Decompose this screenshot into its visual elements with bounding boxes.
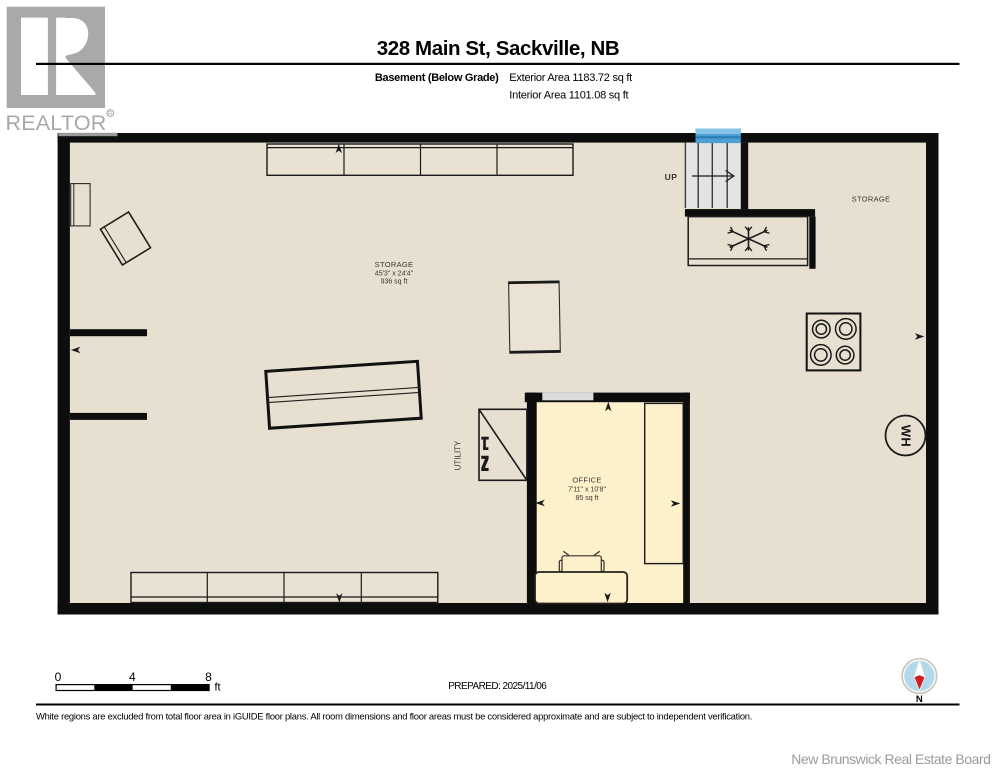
svg-text:7'11" x 10'8": 7'11" x 10'8" (568, 486, 606, 493)
svg-text:85 sq ft: 85 sq ft (576, 495, 599, 502)
svg-text:Basement (Below Grade): Basement (Below Grade) (375, 72, 499, 84)
svg-text:936 sq ft: 936 sq ft (381, 279, 408, 286)
svg-text:New Brunswick Real Estate Boar: New Brunswick Real Estate Board (791, 751, 990, 767)
svg-text:UP: UP (665, 172, 678, 182)
svg-text:328 Main St, Sackville, NB: 328 Main St, Sackville, NB (377, 37, 620, 60)
svg-text:N: N (916, 694, 923, 705)
svg-text:R: R (108, 110, 113, 117)
svg-text:STORAGE: STORAGE (852, 194, 891, 203)
svg-text:45'3" x 24'4": 45'3" x 24'4" (375, 271, 414, 278)
svg-text:0: 0 (55, 670, 62, 684)
svg-text:W: W (898, 425, 913, 438)
svg-text:ft: ft (215, 682, 221, 694)
svg-text:REALTOR: REALTOR (6, 111, 107, 135)
svg-text:PREPARED: 2025/11/06: PREPARED: 2025/11/06 (448, 681, 547, 692)
svg-text:4: 4 (129, 670, 136, 684)
svg-text:STORAGE: STORAGE (375, 260, 414, 269)
svg-text:8: 8 (205, 670, 212, 684)
svg-text:Exterior Area 1183.72 sq ft: Exterior Area 1183.72 sq ft (509, 72, 632, 84)
svg-text:White regions are excluded fro: White regions are excluded from total fl… (36, 711, 752, 722)
svg-text:OFFICE: OFFICE (572, 476, 601, 485)
svg-text:UTILITY: UTILITY (454, 440, 463, 470)
svg-text:H: H (898, 437, 913, 446)
svg-text:Interior Area 1101.08 sq ft: Interior Area 1101.08 sq ft (509, 89, 628, 101)
